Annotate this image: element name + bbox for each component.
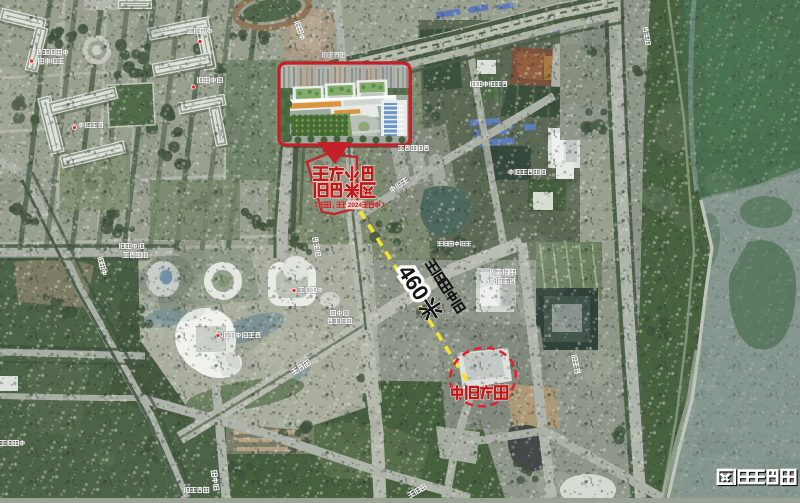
svg-text:2024: 2024 [348,202,363,209]
